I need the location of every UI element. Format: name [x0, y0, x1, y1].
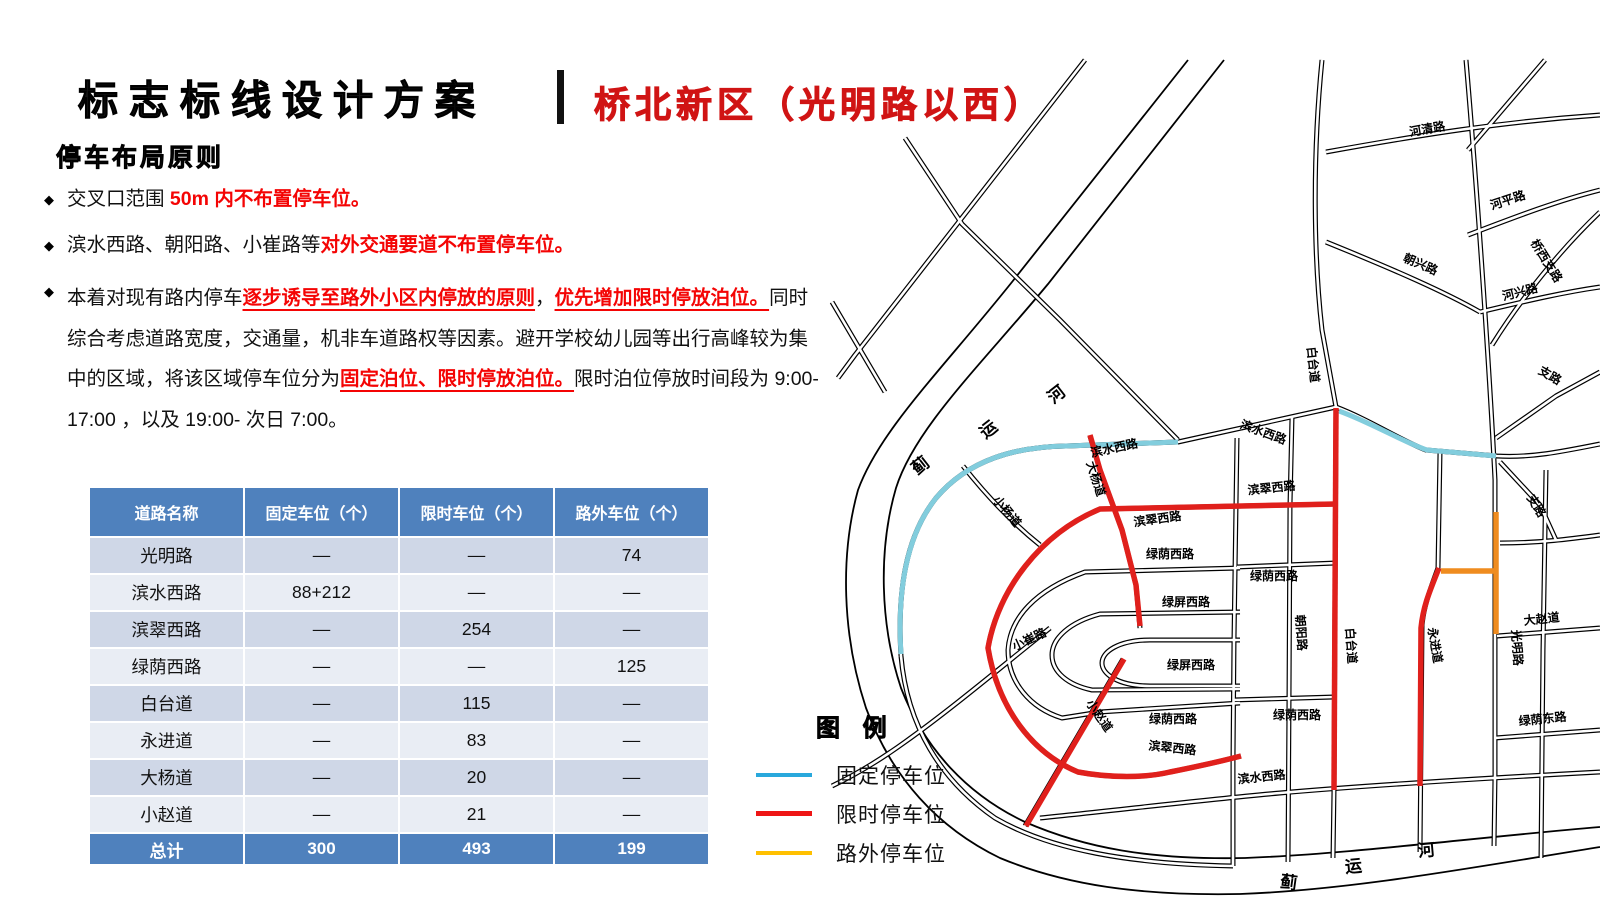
table-cell: — — [400, 649, 553, 684]
text-segment: 50m — [170, 188, 214, 210]
table-cell: 绿荫西路 — [90, 649, 243, 684]
table-cell: 115 — [400, 686, 553, 721]
table-cell: — — [555, 723, 708, 758]
table-cell: 永进道 — [90, 723, 243, 758]
timed-parking-yongjin — [1420, 568, 1439, 786]
map-label-河清路: 河清路 — [1407, 118, 1447, 139]
map-label-朝阳路: 朝阳路 — [1293, 614, 1311, 652]
map-label-绿荫西路: 绿荫西路 — [1146, 546, 1195, 561]
timed-parking-baitai — [1334, 408, 1336, 790]
map-label-小杨道: 小杨道 — [990, 492, 1025, 529]
map-label-河: 河 — [1044, 382, 1069, 407]
map-label-绿荫西路: 绿荫西路 — [1149, 711, 1198, 726]
column-header: 道路名称 — [90, 488, 243, 536]
map-label-永进道: 永进道 — [1425, 625, 1446, 664]
text-segment: 固定泊位、限时停放泊位。 — [340, 368, 574, 390]
legend-line-icon — [756, 773, 812, 777]
bullet-text: 交叉口范围 50m 内不布置停车位。 — [67, 186, 370, 213]
table-cell: 滨翠西路 — [90, 612, 243, 647]
table-cell: — — [555, 797, 708, 832]
table-total-cell: 493 — [400, 834, 553, 864]
map-label-滨水西路: 滨水西路 — [1089, 435, 1140, 460]
text-segment: 优先增加限时停放泊位。 — [555, 287, 770, 309]
table-body: 光明路——74滨水西路88+212——滨翠西路—254—绿荫西路——125白台道… — [90, 538, 708, 864]
legend-line-icon — [756, 811, 812, 816]
table-row: 大杨道—20— — [90, 760, 708, 795]
table-cell: 88+212 — [245, 575, 398, 610]
table-cell: 125 — [555, 649, 708, 684]
table-total-row: 总计300493199 — [90, 834, 708, 864]
bullet-item-1: ◆交叉口范围 50m 内不布置停车位。 — [44, 186, 819, 213]
table-row: 滨水西路88+212—— — [90, 575, 708, 610]
text-segment: 交叉口范围 — [67, 188, 170, 210]
bullet-diamond-icon: ◆ — [44, 186, 54, 213]
legend-label: 固定停车位 — [836, 760, 946, 790]
text-segment: 逐步诱导至路外小区内停放的原则 — [243, 287, 536, 309]
table-cell: — — [400, 538, 553, 573]
map-label-绿荫西路: 绿荫西路 — [1250, 568, 1299, 583]
table-cell: 小赵道 — [90, 797, 243, 832]
map-legend: 图 例 固定停车位限时停车位路外停车位 — [748, 708, 978, 872]
map-label-河: 河 — [1417, 840, 1436, 860]
table-cell: — — [555, 575, 708, 610]
map-label-蓟: 蓟 — [1278, 871, 1299, 893]
map-label-支路: 支路 — [1535, 362, 1565, 388]
text-segment: ， — [535, 287, 555, 309]
map-label-绿荫东路: 绿荫东路 — [1518, 708, 1568, 728]
legend-label: 路外停车位 — [836, 838, 946, 868]
text-segment: 滨水西路、朝阳路、小崔路等 — [67, 234, 321, 256]
table-cell: — — [555, 686, 708, 721]
table-cell: — — [555, 760, 708, 795]
table-cell: — — [400, 575, 553, 610]
table-cell: — — [245, 612, 398, 647]
table-cell: 254 — [400, 612, 553, 647]
title-divider — [557, 70, 564, 124]
bullet-text: 滨水西路、朝阳路、小崔路等对外交通要道不布置停车位。 — [67, 232, 574, 259]
table-total-cell: 300 — [245, 834, 398, 864]
legend-label: 限时停车位 — [836, 799, 946, 829]
map-label-桥西支路: 桥西支路 — [1528, 236, 1567, 286]
map-label-白台道: 白台道 — [1343, 627, 1360, 664]
section-heading: 停车布局原则 — [56, 138, 224, 174]
table-row: 光明路——74 — [90, 538, 708, 573]
text-segment: 本着对现有路内停车 — [67, 287, 243, 309]
map-label-白台道: 白台道 — [1304, 346, 1323, 383]
table-cell: 大杨道 — [90, 760, 243, 795]
map-label-光明路: 光明路 — [1509, 628, 1527, 667]
table-cell: 白台道 — [90, 686, 243, 721]
table-cell: 83 — [400, 723, 553, 758]
map-label-运: 运 — [976, 417, 1001, 442]
table-cell: — — [245, 797, 398, 832]
table-row: 绿荫西路——125 — [90, 649, 708, 684]
text-segment: 对外交通要道不布置停车位。 — [321, 234, 575, 256]
table-cell: 20 — [400, 760, 553, 795]
map-label-大赵道: 大赵道 — [1523, 609, 1560, 628]
table-cell: 滨水西路 — [90, 575, 243, 610]
legend-items: 固定停车位限时停车位路外停车位 — [748, 755, 978, 872]
bullet-list: ◆交叉口范围 50m 内不布置停车位。◆滨水西路、朝阳路、小崔路等对外交通要道不… — [44, 186, 819, 459]
bullet-item-2: ◆滨水西路、朝阳路、小崔路等对外交通要道不布置停车位。 — [44, 232, 819, 259]
legend-item: 路外停车位 — [748, 833, 978, 872]
table-cell: — — [555, 612, 708, 647]
table-total-cell: 199 — [555, 834, 708, 864]
legend-title: 图 例 — [816, 708, 978, 743]
table-cell: — — [245, 538, 398, 573]
bullet-text: 本着对现有路内停车逐步诱导至路外小区内停放的原则，优先增加限时停放泊位。同时综合… — [67, 278, 819, 440]
page-title: 标志标线设计方案 — [78, 68, 486, 126]
legend-item: 限时停车位 — [748, 794, 978, 833]
table-row: 白台道—115— — [90, 686, 708, 721]
column-header: 固定车位（个） — [245, 488, 398, 536]
map-label-绿荫西路: 绿荫西路 — [1273, 707, 1322, 722]
table-row: 滨翠西路—254— — [90, 612, 708, 647]
table-cell: — — [245, 723, 398, 758]
column-header: 限时车位（个） — [400, 488, 553, 536]
table-cell: 21 — [400, 797, 553, 832]
table-cell: 光明路 — [90, 538, 243, 573]
column-header: 路外车位（个） — [555, 488, 708, 536]
table-cell: — — [245, 686, 398, 721]
table-row: 小赵道—21— — [90, 797, 708, 832]
legend-line-icon — [756, 851, 812, 855]
table-total-cell: 总计 — [90, 834, 243, 864]
map-label-绿屏西路: 绿屏西路 — [1162, 594, 1211, 609]
map-label-绿屏西路: 绿屏西路 — [1167, 657, 1216, 672]
text-segment: 内不布置停车位。 — [214, 188, 370, 210]
legend-item: 固定停车位 — [748, 755, 978, 794]
table-cell: — — [245, 760, 398, 795]
table-row: 永进道—83— — [90, 723, 708, 758]
bullet-diamond-icon: ◆ — [44, 278, 54, 305]
map-label-河平路: 河平路 — [1487, 187, 1528, 213]
table-header: 道路名称固定车位（个）限时车位（个）路外车位（个） — [90, 488, 708, 536]
map-label-滨翠西路: 滨翠西路 — [1148, 738, 1198, 758]
table-cell: 74 — [555, 538, 708, 573]
offstreet-parking-roads — [1441, 512, 1496, 634]
bullet-item-3: ◆本着对现有路内停车逐步诱导至路外小区内停放的原则，优先增加限时停放泊位。同时综… — [44, 278, 819, 440]
table-header-row: 道路名称固定车位（个）限时车位（个）路外车位（个） — [90, 488, 708, 536]
table-cell: — — [245, 649, 398, 684]
parking-berth-table: 道路名称固定车位（个）限时车位（个）路外车位（个） 光明路——74滨水西路88+… — [88, 486, 710, 866]
bullet-diamond-icon: ◆ — [44, 232, 54, 259]
fixed-parking-roads — [900, 411, 1496, 654]
map-label-运: 运 — [1344, 856, 1363, 876]
map-label-滨水西路: 滨水西路 — [1237, 766, 1287, 786]
timed-parking-roads — [988, 408, 1439, 826]
